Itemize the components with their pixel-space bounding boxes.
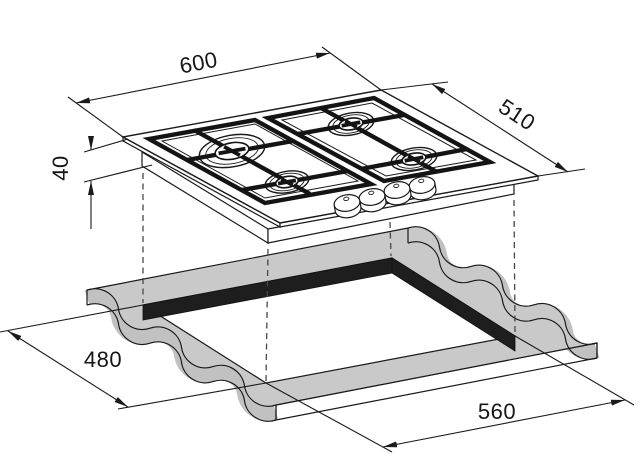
knob-indicator-dot (393, 184, 399, 188)
extension-line (381, 82, 448, 90)
dimension-label-cutout-depth: 480 (84, 347, 122, 372)
dimension-label-cutout-width: 560 (478, 399, 516, 424)
extension-line (322, 47, 381, 90)
knob-indicator-dot (343, 197, 349, 201)
knob-indicator-dot (418, 179, 424, 183)
extension-line (84, 165, 152, 182)
dimension-label-hob-height: 40 (48, 155, 73, 180)
dimension-label-hob-width: 600 (177, 47, 219, 79)
installation-diagram: 600 510 40 480 560 (0, 0, 640, 456)
extension-line (538, 169, 585, 176)
worktop (87, 227, 597, 422)
dimension-40: 40 (48, 139, 152, 229)
knob-indicator-dot (368, 191, 374, 195)
diagram-canvas: 600 510 40 480 560 (0, 0, 640, 456)
